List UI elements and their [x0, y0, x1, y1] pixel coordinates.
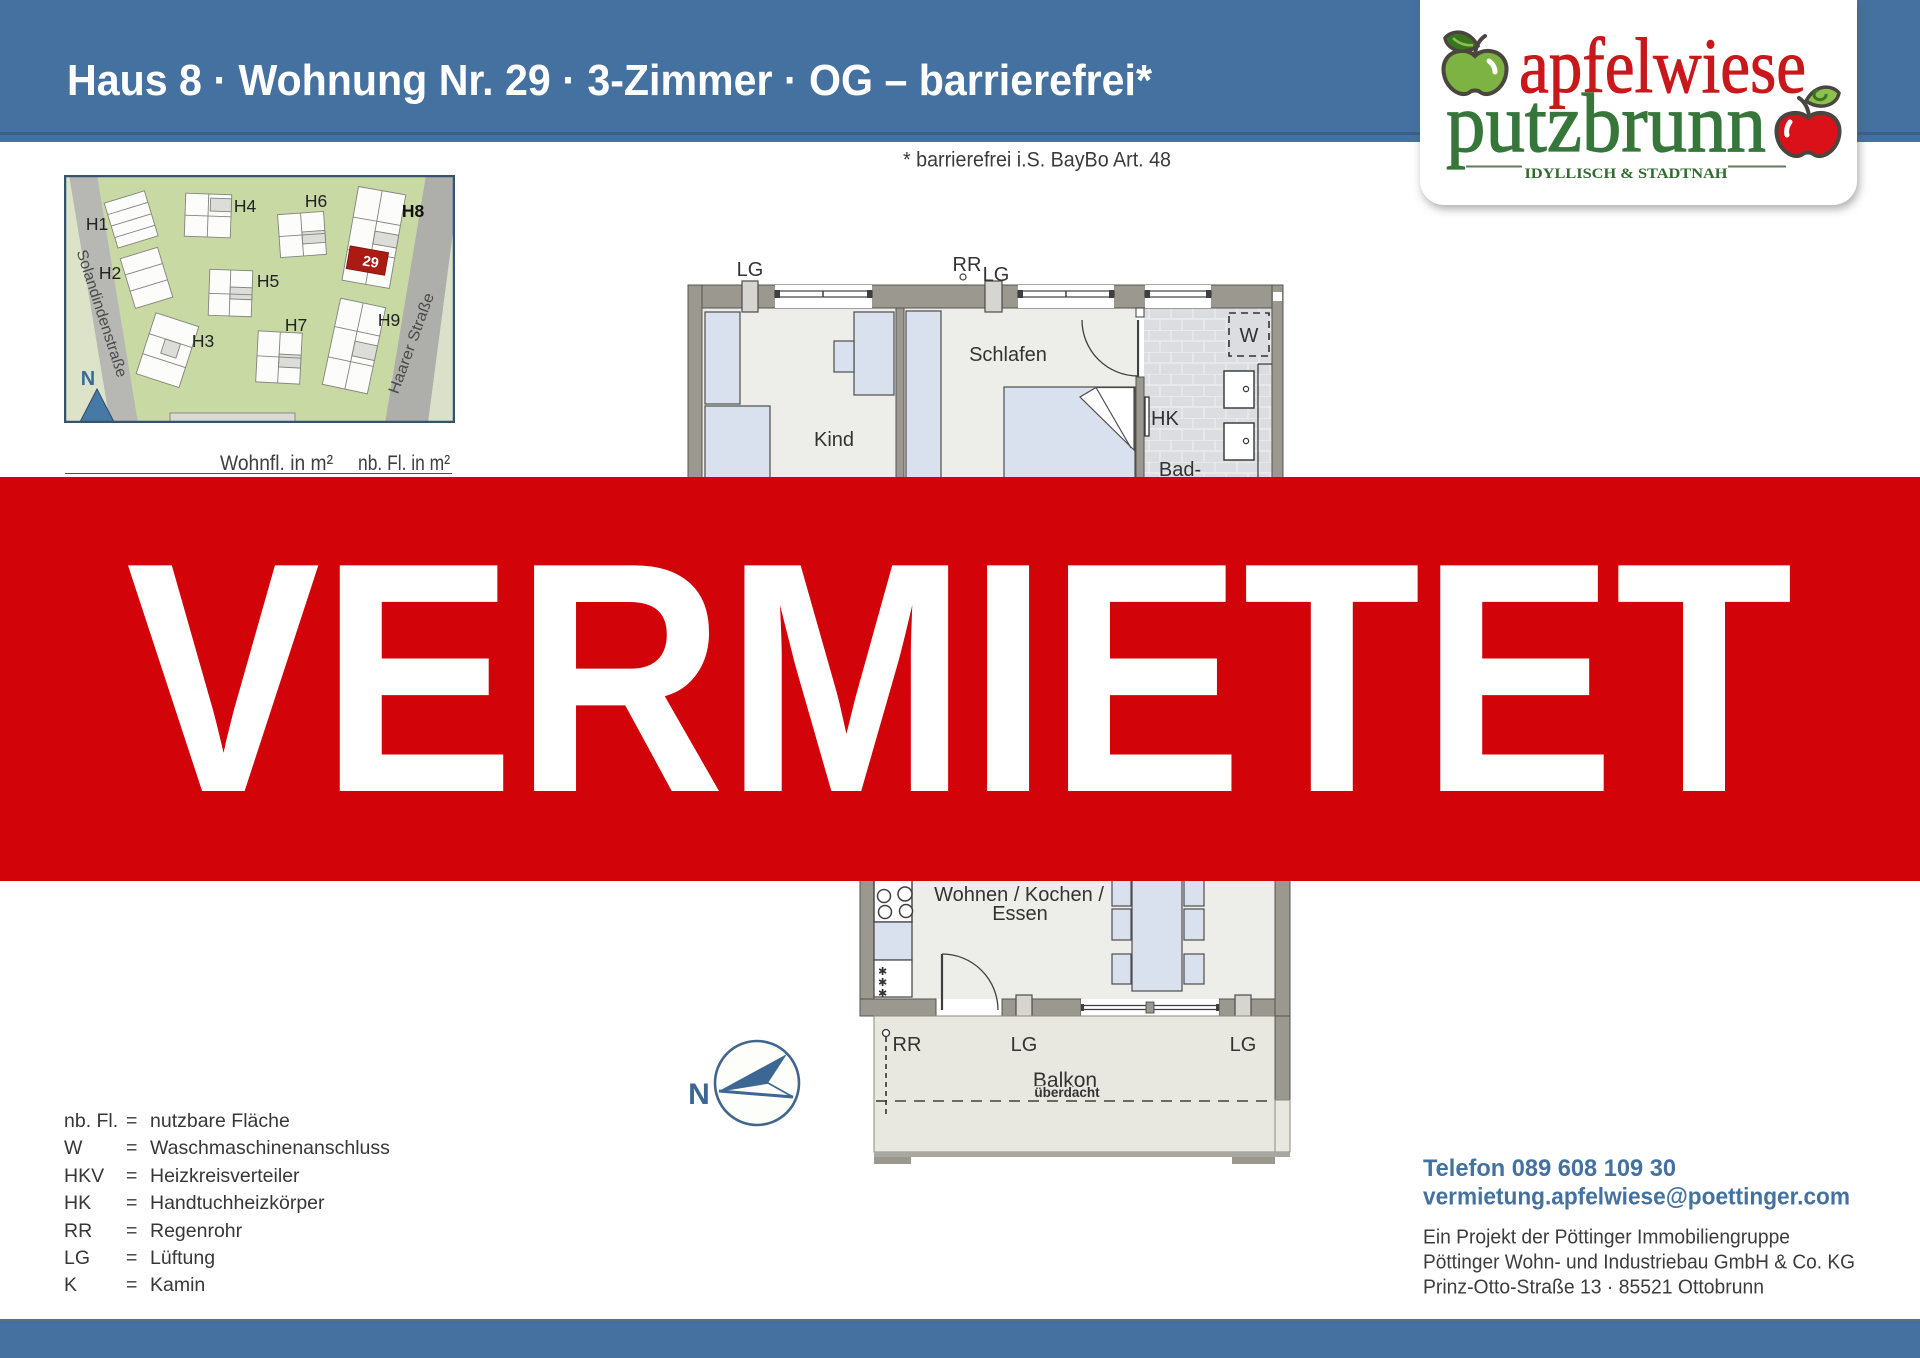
svg-text:H6: H6 — [305, 191, 327, 211]
svg-text:RR: RR — [953, 254, 982, 276]
svg-text:Kind: Kind — [814, 429, 854, 451]
svg-text:Schlafen: Schlafen — [969, 344, 1047, 366]
svg-text:H3: H3 — [192, 331, 214, 351]
svg-text:H7: H7 — [285, 315, 307, 335]
svg-text:N: N — [81, 368, 95, 390]
svg-text:LG: LG — [1011, 1034, 1038, 1056]
svg-text:vermietung.apfelwiese@poetting: vermietung.apfelwiese@poettinger.com — [1423, 1184, 1850, 1211]
svg-text:Prinz-Otto-Straße 13 · 85521 O: Prinz-Otto-Straße 13 · 85521 Ottobrunn — [1423, 1276, 1764, 1299]
svg-text:✱: ✱ — [878, 988, 887, 1000]
svg-text:N: N — [688, 1078, 710, 1111]
svg-text:nb. Fl. in m²: nb. Fl. in m² — [358, 451, 450, 475]
svg-text:Haus 8 · Wohnung Nr. 29 · 3-Zi: Haus 8 · Wohnung Nr. 29 · 3-Zimmer · OG … — [67, 56, 1153, 105]
svg-text:LG: LG — [737, 259, 764, 281]
svg-text:Wohnfl. in m²: Wohnfl. in m² — [220, 451, 333, 475]
svg-text:RR: RR — [893, 1034, 922, 1056]
svg-text:H8: H8 — [402, 201, 425, 221]
svg-text:Pöttinger Wohn- und Industrieb: Pöttinger Wohn- und Industriebau GmbH & … — [1423, 1251, 1855, 1274]
svg-text:HK: HK — [1151, 408, 1179, 430]
svg-text:H9: H9 — [378, 310, 400, 330]
svg-text:Essen: Essen — [992, 903, 1048, 925]
svg-text:H4: H4 — [234, 196, 257, 216]
svg-text:H5: H5 — [257, 271, 279, 291]
svg-text:H2: H2 — [99, 263, 121, 283]
svg-text:VERMIETET: VERMIETET — [126, 494, 1793, 861]
svg-text:* barrierefrei i.S. BayBo Art.: * barrierefrei i.S. BayBo Art. 48 — [903, 148, 1171, 172]
svg-text:überdacht: überdacht — [1034, 1085, 1100, 1100]
svg-text:29: 29 — [361, 253, 380, 272]
svg-text:H1: H1 — [86, 214, 108, 234]
svg-text:LG: LG — [983, 264, 1010, 286]
svg-text:Ein Projekt der Pöttinger Immo: Ein Projekt der Pöttinger Immobiliengrup… — [1423, 1226, 1790, 1249]
svg-text:IDYLLISCH & STADTNAH: IDYLLISCH & STADTNAH — [1525, 166, 1729, 182]
svg-text:LG: LG — [1230, 1034, 1257, 1056]
svg-text:W: W — [1240, 325, 1259, 347]
svg-text:Telefon 089 608 109 30: Telefon 089 608 109 30 — [1423, 1155, 1676, 1182]
